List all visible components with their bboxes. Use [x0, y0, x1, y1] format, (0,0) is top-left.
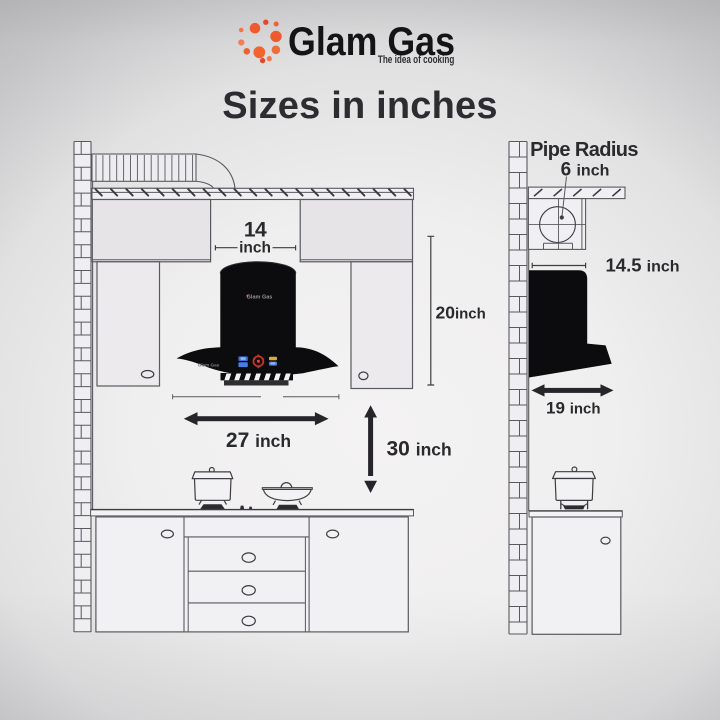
svg-text:30 inch: 30 inch — [387, 438, 452, 461]
svg-text:Pipe Radius: Pipe Radius — [530, 139, 638, 161]
svg-text:14: 14 — [244, 219, 267, 242]
svg-text:27 inch: 27 inch — [226, 429, 291, 452]
svg-text:14.5 inch: 14.5 inch — [606, 255, 680, 276]
svg-text:Glam Gas: Glam Gas — [247, 294, 273, 300]
svg-text:20inch: 20inch — [436, 303, 486, 323]
svg-text:inch: inch — [239, 239, 271, 256]
svg-text:6 inch: 6 inch — [561, 160, 610, 181]
svg-text:Glam Gas: Glam Gas — [198, 362, 220, 367]
svg-text:19 inch: 19 inch — [546, 398, 600, 417]
